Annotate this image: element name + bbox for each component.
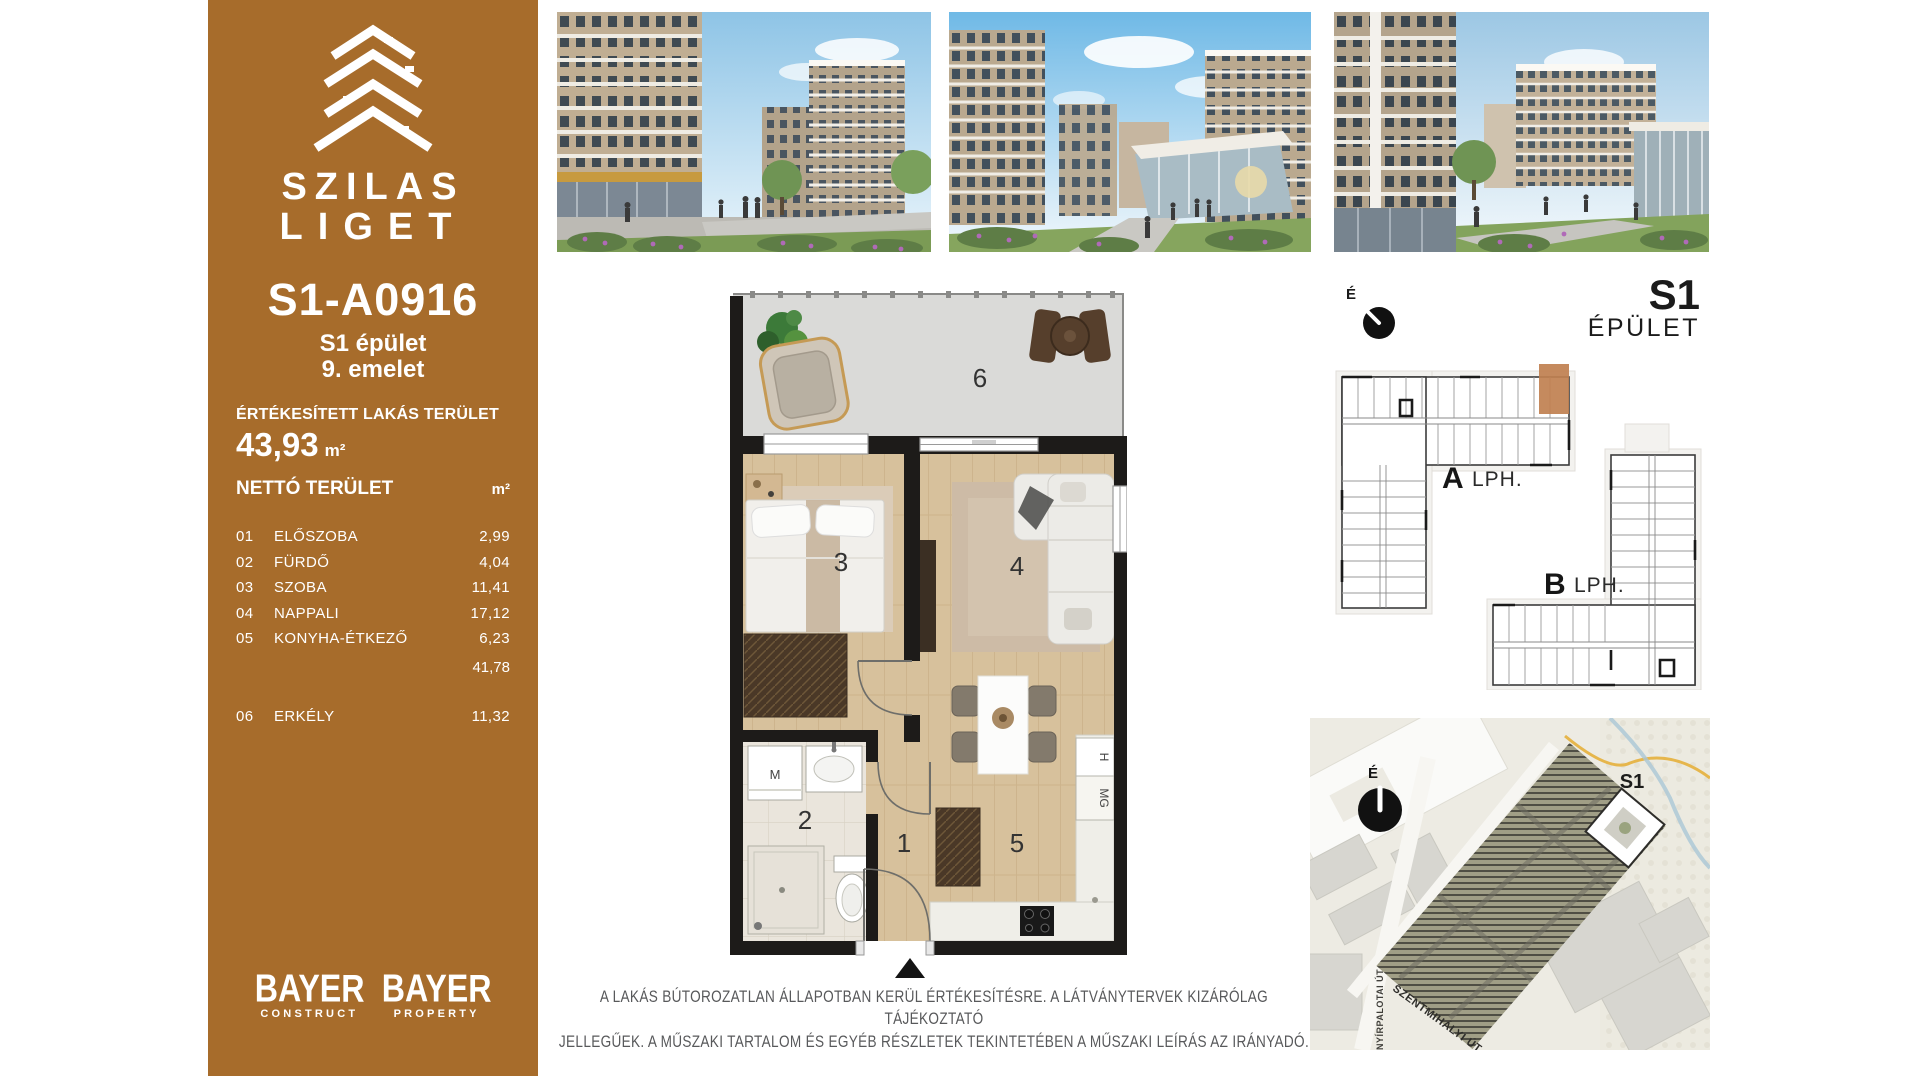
net-area-label: NETTÓ TERÜLET bbox=[236, 478, 393, 500]
room-label-bathroom: 2 bbox=[798, 805, 812, 835]
keyplan-wing-b bbox=[1493, 455, 1695, 685]
table-row: 01 ELŐSZOBA 2,99 bbox=[236, 524, 510, 550]
logo-wordmark-line1: SZILAS bbox=[208, 166, 538, 209]
room-area: 11,41 bbox=[472, 579, 510, 596]
room-number: 06 bbox=[236, 708, 274, 725]
building-title: S1 ÉPÜLET bbox=[1500, 276, 1700, 343]
table-row: 04 NAPPALI 17,12 bbox=[236, 601, 510, 627]
bathroom-sink bbox=[806, 740, 862, 792]
room-label-hall: 1 bbox=[897, 828, 911, 858]
room-name: NAPPALI bbox=[274, 605, 470, 622]
bistro-set bbox=[1029, 308, 1112, 363]
brand-name: BAYER bbox=[382, 970, 492, 1008]
tv-console bbox=[920, 540, 936, 652]
room-number: 01 bbox=[236, 528, 274, 545]
room-name: KONYHA-ÉTKEZŐ bbox=[274, 630, 479, 647]
key-plan: A LPH. B LPH. bbox=[1300, 360, 1720, 690]
bayer-construct-logo: BAYER CONSTRUCT bbox=[250, 972, 369, 1020]
wing-b-label: B bbox=[1544, 568, 1566, 601]
wing-a-label: A bbox=[1442, 462, 1464, 495]
net-area-subtotal: 41,78 bbox=[236, 655, 510, 681]
room-label-kitchen: 5 bbox=[1010, 828, 1024, 858]
table-row-balcony: 06 ERKÉLY 11,32 bbox=[236, 704, 510, 730]
sold-area-unit: m² bbox=[325, 441, 346, 460]
disclaimer-line2: JELLEGŰEK. A MŰSZAKI TARTALOM ÉS EGYÉB R… bbox=[556, 1031, 1312, 1053]
room-name: FÜRDŐ bbox=[274, 554, 479, 571]
room-label-bedroom: 3 bbox=[834, 547, 848, 577]
sitemap-building-tag: S1 bbox=[1620, 771, 1644, 793]
floor-name: 9. emelet bbox=[208, 356, 538, 384]
dishwasher-label: MG bbox=[1097, 788, 1111, 807]
site-map: S1 É NYÍRPALOTAI ÚT SZENTMIHÁLYI ÚT bbox=[1310, 718, 1710, 1050]
room-name: SZOBA bbox=[274, 579, 472, 596]
table-row: 02 FÜRDŐ 4,04 bbox=[236, 550, 510, 576]
room-area: 4,04 bbox=[479, 554, 510, 571]
room-area: 17,12 bbox=[470, 605, 510, 622]
washer-label: M bbox=[770, 767, 781, 782]
render-photo-1 bbox=[557, 12, 931, 252]
net-area-unit-header: m² bbox=[492, 481, 510, 498]
room-area: 6,23 bbox=[479, 630, 510, 647]
brand-name: BAYER bbox=[254, 970, 364, 1008]
door-jamb bbox=[926, 941, 934, 955]
room-name: ERKÉLY bbox=[274, 708, 472, 725]
room-number: 04 bbox=[236, 605, 274, 622]
room-label-balcony: 6 bbox=[973, 363, 987, 393]
sold-area-number: 43,93 bbox=[236, 426, 319, 463]
sitemap-compass-label: É bbox=[1368, 765, 1378, 782]
sold-area-label: ÉRTÉKESÍTETT LAKÁS TERÜLET bbox=[236, 406, 499, 424]
compass-floor: É bbox=[1340, 286, 1410, 356]
sidebar: SZILAS LIGET S1-A0916 S1 épület 9. emele… bbox=[208, 0, 538, 1076]
render-photo-3 bbox=[1334, 12, 1709, 252]
street-name-vertical: NYÍRPALOTAI ÚT bbox=[1374, 969, 1385, 1050]
room-number: 05 bbox=[236, 630, 274, 647]
render-photo-2 bbox=[949, 12, 1311, 252]
shower bbox=[748, 846, 824, 934]
bed bbox=[746, 500, 884, 632]
subtotal-value: 41,78 bbox=[472, 659, 510, 676]
table-row: 03 SZOBA 11,41 bbox=[236, 575, 510, 601]
logo-wordmark-line2: LIGET bbox=[208, 206, 538, 249]
wing-b-suffix: LPH. bbox=[1574, 574, 1625, 597]
room-name: ELŐSZOBA bbox=[274, 528, 479, 545]
building-code: S1 bbox=[1500, 276, 1700, 314]
sold-area-value: 43,93m² bbox=[236, 426, 345, 464]
brochure-page: SZILAS LIGET S1-A0916 S1 épület 9. emele… bbox=[0, 0, 1920, 1080]
door-jamb bbox=[856, 941, 864, 955]
disclaimer: A LAKÁS BÚTOROZATLAN ÁLLAPOTBAN KERÜL ÉR… bbox=[556, 986, 1312, 1053]
room-number: 03 bbox=[236, 579, 274, 596]
apartment-id: S1-A0916 bbox=[208, 274, 538, 326]
sitemap-compass-icon bbox=[1358, 788, 1402, 832]
compass-icon bbox=[1354, 298, 1404, 348]
table-row: 05 KONYHA-ÉTKEZŐ 6,23 bbox=[236, 626, 510, 652]
brand-logos: BAYER CONSTRUCT BAYER PROPERTY bbox=[208, 972, 538, 1020]
lounge-chair bbox=[758, 335, 851, 432]
highlighted-unit bbox=[1539, 364, 1569, 414]
room-number: 02 bbox=[236, 554, 274, 571]
room-area: 2,99 bbox=[479, 528, 510, 545]
szilas-liget-roof-logo-icon bbox=[288, 16, 458, 156]
bedroom-wardrobe bbox=[744, 634, 847, 717]
room-label-living: 4 bbox=[1010, 551, 1024, 581]
bayer-property-logo: BAYER PROPERTY bbox=[377, 972, 496, 1020]
room-area-table: 01 ELŐSZOBA 2,99 02 FÜRDŐ 4,04 03 SZOBA … bbox=[236, 524, 510, 730]
room-area: 11,32 bbox=[472, 708, 510, 725]
building-word: ÉPÜLET bbox=[1500, 314, 1700, 343]
entrance-arrow-icon bbox=[895, 958, 925, 978]
hall-cabinet bbox=[936, 808, 980, 886]
wing-a-suffix: LPH. bbox=[1472, 468, 1523, 491]
fridge-label: H bbox=[1097, 753, 1111, 762]
building-name: S1 épület bbox=[208, 330, 538, 358]
floor-plan: 6 3 4 2 1 5 M H MG bbox=[730, 290, 1127, 990]
disclaimer-line1: A LAKÁS BÚTOROZATLAN ÁLLAPOTBAN KERÜL ÉR… bbox=[556, 986, 1312, 1031]
net-area-header: NETTÓ TERÜLET m² bbox=[236, 478, 510, 500]
